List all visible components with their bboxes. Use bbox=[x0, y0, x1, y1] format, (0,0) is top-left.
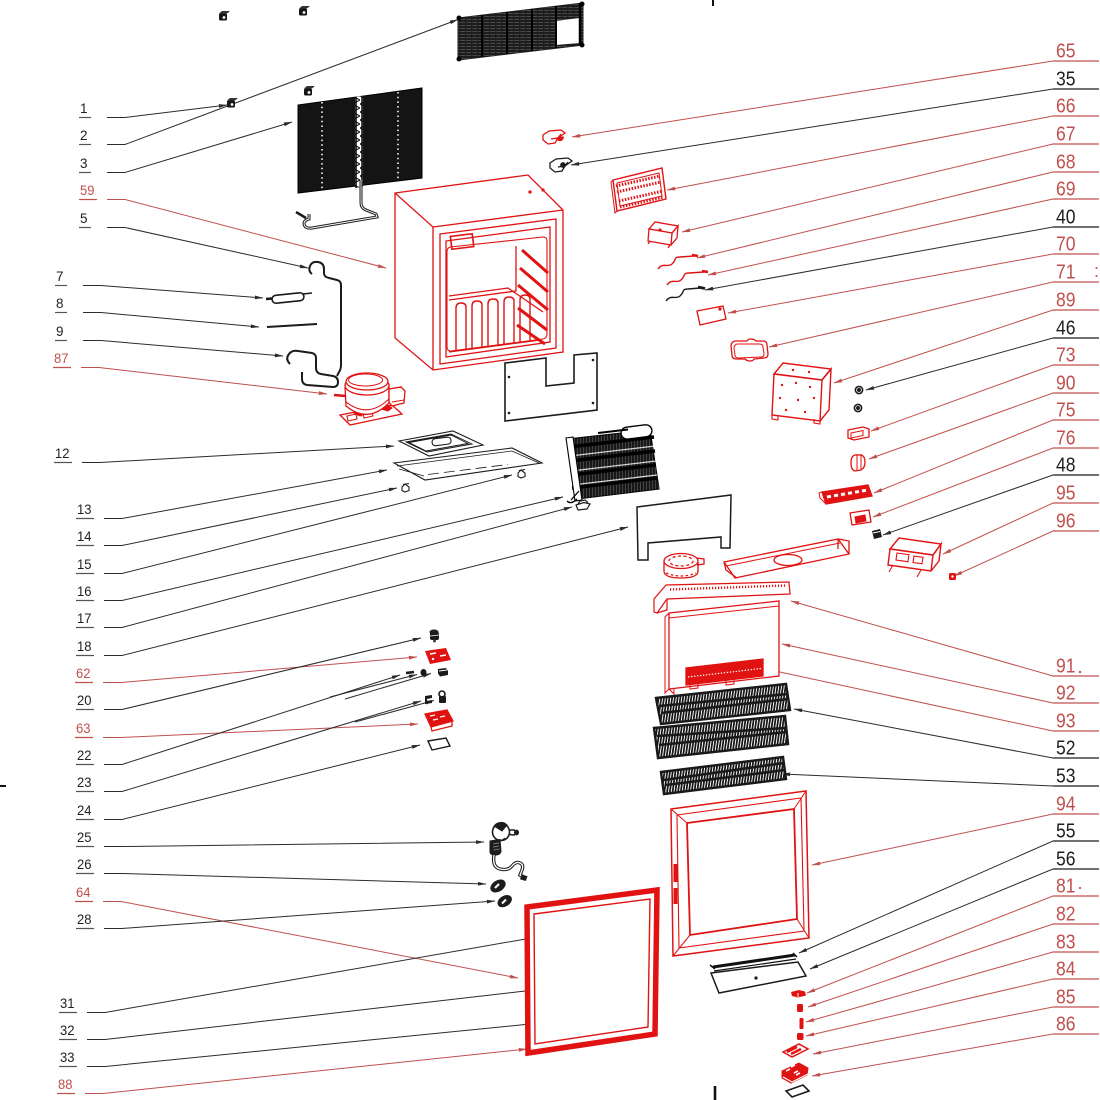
svg-text:33: 33 bbox=[60, 1050, 75, 1065]
svg-text:9: 9 bbox=[56, 324, 64, 339]
svg-text:69: 69 bbox=[1056, 178, 1076, 201]
svg-text:59: 59 bbox=[80, 183, 95, 198]
svg-text:56: 56 bbox=[1056, 848, 1076, 871]
svg-text:5: 5 bbox=[80, 211, 88, 226]
svg-text:55: 55 bbox=[1056, 820, 1076, 843]
svg-text:25: 25 bbox=[77, 830, 92, 845]
svg-text:92: 92 bbox=[1056, 682, 1076, 705]
svg-text:1: 1 bbox=[80, 101, 88, 116]
svg-text:2: 2 bbox=[80, 128, 88, 143]
svg-text:94: 94 bbox=[1056, 793, 1076, 816]
svg-text:24: 24 bbox=[77, 803, 92, 818]
svg-text:73: 73 bbox=[1056, 344, 1076, 367]
svg-text:23: 23 bbox=[77, 775, 92, 790]
svg-text:52: 52 bbox=[1056, 737, 1076, 760]
svg-text:87: 87 bbox=[54, 351, 69, 366]
svg-text:66: 66 bbox=[1056, 95, 1076, 118]
svg-text:83: 83 bbox=[1056, 931, 1076, 954]
svg-text:75: 75 bbox=[1056, 399, 1076, 422]
svg-text:88: 88 bbox=[58, 1077, 73, 1092]
svg-text:91: 91 bbox=[1056, 655, 1076, 678]
svg-text:70: 70 bbox=[1056, 233, 1076, 256]
svg-text:13: 13 bbox=[77, 502, 92, 517]
svg-text:68: 68 bbox=[1056, 151, 1076, 174]
svg-text:40: 40 bbox=[1056, 206, 1076, 229]
svg-text:7: 7 bbox=[56, 269, 64, 284]
svg-text:16: 16 bbox=[77, 584, 92, 599]
svg-text:46: 46 bbox=[1056, 317, 1076, 340]
svg-text:76: 76 bbox=[1056, 427, 1076, 450]
svg-text:53: 53 bbox=[1056, 765, 1076, 788]
svg-text:65: 65 bbox=[1056, 40, 1076, 63]
svg-text:67: 67 bbox=[1056, 123, 1076, 146]
svg-text:28: 28 bbox=[77, 912, 92, 927]
svg-text:32: 32 bbox=[60, 1023, 75, 1038]
svg-text:95: 95 bbox=[1056, 482, 1076, 505]
svg-text:20: 20 bbox=[77, 693, 92, 708]
svg-text:3: 3 bbox=[80, 156, 88, 171]
svg-text:63: 63 bbox=[76, 721, 91, 736]
svg-text:35: 35 bbox=[1056, 68, 1076, 91]
svg-text:26: 26 bbox=[77, 857, 92, 872]
svg-text:8: 8 bbox=[56, 296, 64, 311]
svg-text:82: 82 bbox=[1056, 903, 1076, 926]
svg-text:93: 93 bbox=[1056, 710, 1076, 733]
svg-text:48: 48 bbox=[1056, 454, 1076, 477]
svg-text:84: 84 bbox=[1056, 958, 1076, 981]
svg-text::: : bbox=[1094, 261, 1099, 281]
svg-text:31: 31 bbox=[60, 996, 75, 1011]
svg-text:71: 71 bbox=[1056, 261, 1076, 284]
svg-text:18: 18 bbox=[77, 639, 92, 654]
svg-text:62: 62 bbox=[76, 666, 91, 681]
svg-text:86: 86 bbox=[1056, 1013, 1076, 1036]
svg-text:85: 85 bbox=[1056, 986, 1076, 1009]
svg-text:64: 64 bbox=[76, 885, 91, 900]
svg-text:17: 17 bbox=[77, 611, 92, 626]
svg-text:12: 12 bbox=[55, 446, 70, 461]
svg-text:15: 15 bbox=[77, 557, 92, 572]
svg-text:81: 81 bbox=[1056, 875, 1076, 898]
svg-text:89: 89 bbox=[1056, 289, 1076, 312]
svg-text:90: 90 bbox=[1056, 372, 1076, 395]
svg-text:96: 96 bbox=[1056, 510, 1076, 533]
svg-text:14: 14 bbox=[77, 529, 92, 544]
svg-text:22: 22 bbox=[77, 748, 92, 763]
